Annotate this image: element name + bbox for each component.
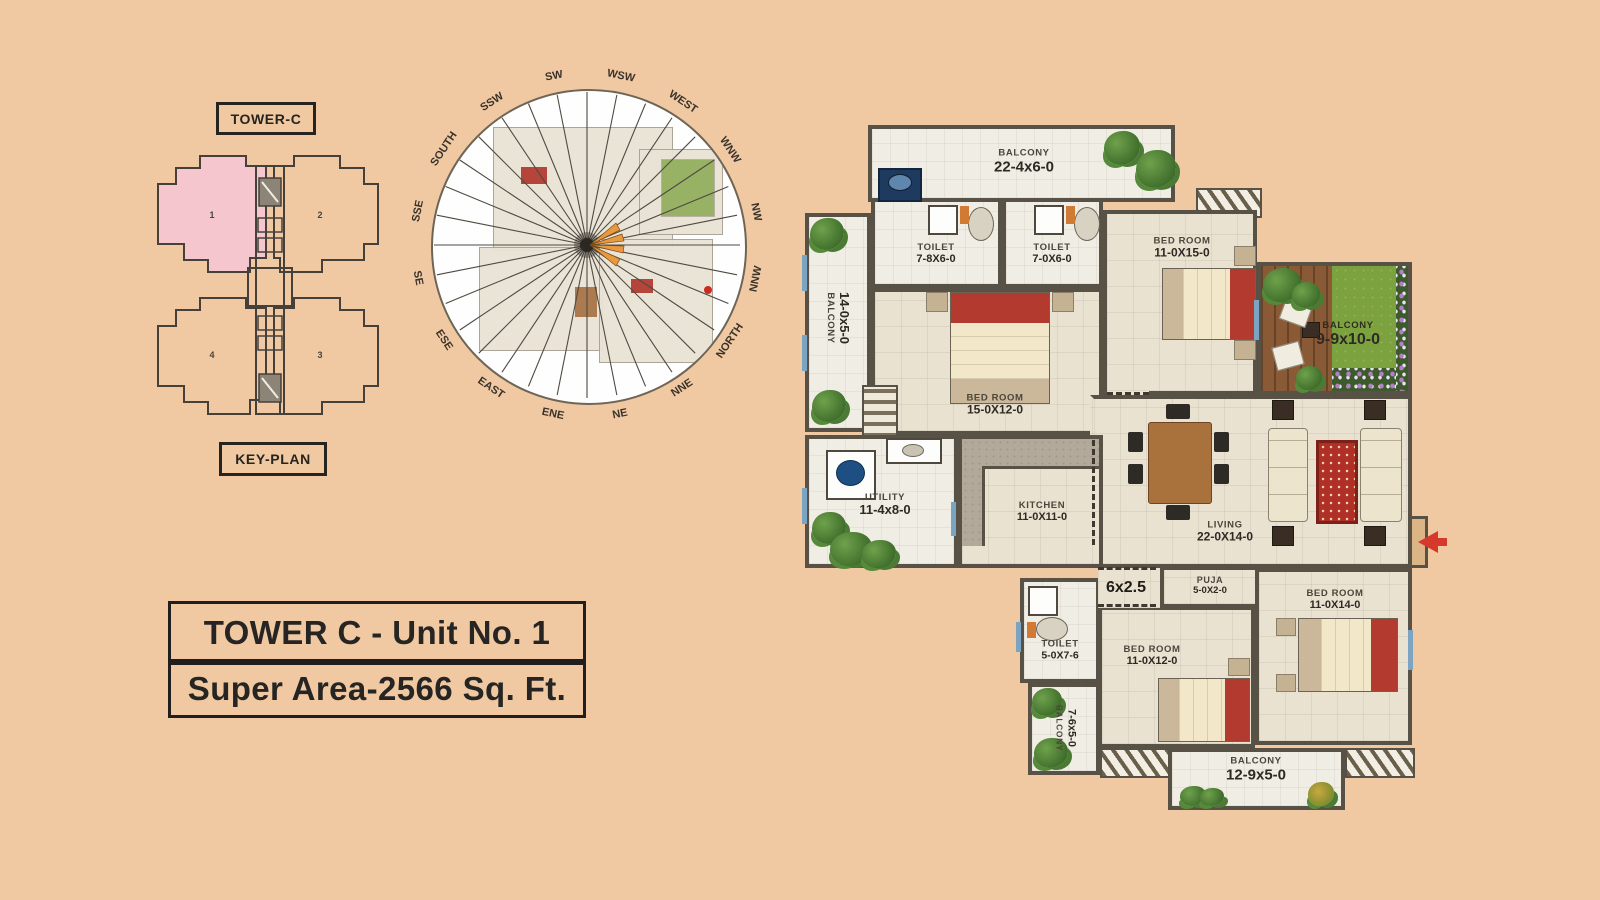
sofa	[1360, 428, 1402, 522]
room-name: BED ROOM	[1306, 588, 1363, 599]
side-table	[1234, 340, 1256, 360]
compass-direction-label: NE	[611, 406, 628, 421]
room-dim: 11-0X11-0	[1017, 511, 1067, 524]
entry-arrow	[1437, 538, 1447, 546]
key-plan-unit-4: 4	[209, 350, 214, 360]
passage-opening	[1098, 604, 1156, 607]
room-name: BALCONY	[1226, 756, 1286, 767]
side-table	[926, 292, 948, 312]
room-dim: 7-8X6-0	[916, 253, 955, 266]
super-area-box: Super Area-2566 Sq. Ft.	[168, 659, 586, 718]
room-dim: 11-0X12-0	[1123, 655, 1180, 668]
compass-rays	[420, 78, 754, 412]
room-dim: 7-6x5-0	[1065, 705, 1078, 751]
tower-label: TOWER-C	[231, 111, 302, 127]
toilet-tank	[1066, 206, 1075, 224]
toilet-wc	[968, 207, 994, 241]
flower-bed	[1396, 266, 1408, 391]
compass-rose: SWWSWWESTWNWNWNNWNORTHNNENEENEEASTESESES…	[420, 78, 754, 412]
room-name: BALCONY	[994, 148, 1054, 159]
bed	[1298, 618, 1398, 692]
window	[802, 255, 807, 291]
end-table	[1364, 400, 1386, 420]
window	[1254, 300, 1259, 340]
toilet-sink	[928, 205, 958, 235]
compass-red-dot	[704, 286, 712, 294]
room-dim: 12-9x5-0	[1226, 767, 1286, 784]
toilet-wc	[1074, 207, 1100, 241]
room-name: BALCONY	[1055, 705, 1065, 751]
window	[1408, 630, 1413, 670]
end-table	[1272, 526, 1294, 546]
entry-arrow	[1418, 531, 1438, 553]
dining-chair	[1214, 464, 1229, 484]
wash-basin	[878, 168, 922, 202]
passage-dim: 6x2.5	[1106, 579, 1146, 597]
room-name: TOILET	[916, 242, 955, 253]
flower-bed	[1332, 368, 1396, 391]
key-plan-unit-1: 1	[209, 210, 214, 220]
room-dim: 22-4x6-0	[994, 159, 1054, 176]
kitchen-counter	[962, 439, 1099, 469]
room-dim: 22-0X14-0	[1197, 531, 1253, 545]
passage-opening	[1098, 567, 1156, 570]
room-dim: 9-9x10-0	[1316, 332, 1380, 350]
door-opening	[1107, 392, 1149, 395]
room-name: TOILET	[1032, 242, 1071, 253]
key-plan-unit-2: 2	[317, 210, 322, 220]
room-name: KITCHEN	[1017, 500, 1067, 511]
window	[951, 502, 956, 536]
side-table	[1276, 674, 1296, 692]
grass-lawn	[1332, 266, 1396, 368]
dining-chair	[1166, 505, 1190, 520]
end-table	[1272, 400, 1294, 420]
unit-title: TOWER C - Unit No. 1	[204, 614, 551, 652]
room-dim: 14-0x5-0	[836, 292, 851, 344]
room-name: BALCONY	[825, 292, 836, 344]
room-dim: 15-0X12-0	[966, 404, 1023, 418]
room-dim: 11-4x8-0	[859, 503, 910, 518]
bed	[1162, 268, 1256, 340]
unit-title-box: TOWER C - Unit No. 1	[168, 601, 586, 665]
window	[802, 488, 807, 524]
bed	[950, 292, 1050, 404]
key-plan-label: KEY-PLAN	[235, 451, 311, 467]
floor-plan-page: { "key_plan": { "tower_label": "TOWER-C"…	[0, 0, 1600, 900]
carpet	[1316, 440, 1358, 524]
toilet-tank	[960, 206, 969, 224]
room-name: TOILET	[1041, 638, 1078, 649]
room-dim: 5-0X2-0	[1193, 586, 1227, 597]
room-dim: 11-0X14-0	[1306, 599, 1363, 612]
super-area-text: Super Area-2566 Sq. Ft.	[188, 670, 566, 708]
key-plan-diagram	[150, 140, 386, 440]
end-table	[1364, 526, 1386, 546]
railing-hatch	[1345, 748, 1415, 778]
dining-chair	[1166, 404, 1190, 419]
tower-label-box: TOWER-C	[216, 102, 316, 135]
sofa	[1268, 428, 1308, 522]
window	[1016, 622, 1021, 652]
dining-chair	[1128, 432, 1143, 452]
side-table	[1276, 618, 1296, 636]
dining-chair	[1128, 464, 1143, 484]
railing-hatch	[1100, 748, 1170, 778]
toilet-sink	[1034, 205, 1064, 235]
kitchen-counter	[962, 466, 985, 546]
side-table	[1228, 658, 1250, 676]
key-plan-label-box: KEY-PLAN	[219, 442, 327, 476]
room-dim: 7-0X6-0	[1032, 253, 1071, 266]
room-name: BALCONY	[1316, 320, 1380, 331]
room-dim: 5-0X7-6	[1041, 650, 1078, 662]
key-plan-unit-3: 3	[317, 350, 322, 360]
toilet-sink	[1028, 586, 1058, 616]
utility-sink	[886, 438, 942, 464]
side-table	[1234, 246, 1256, 266]
dining-table	[1148, 422, 1212, 504]
living-open-wall	[1092, 440, 1095, 545]
bed	[1158, 678, 1250, 742]
toilet-tank	[1027, 622, 1036, 638]
dining-chair	[1214, 432, 1229, 452]
room-dim: 11-0X15-0	[1153, 247, 1210, 261]
stairs-hatch	[862, 385, 898, 439]
room-name: BED ROOM	[1123, 644, 1180, 655]
compass-direction-label: NW	[748, 202, 763, 222]
side-table	[1052, 292, 1074, 312]
window	[802, 335, 807, 371]
